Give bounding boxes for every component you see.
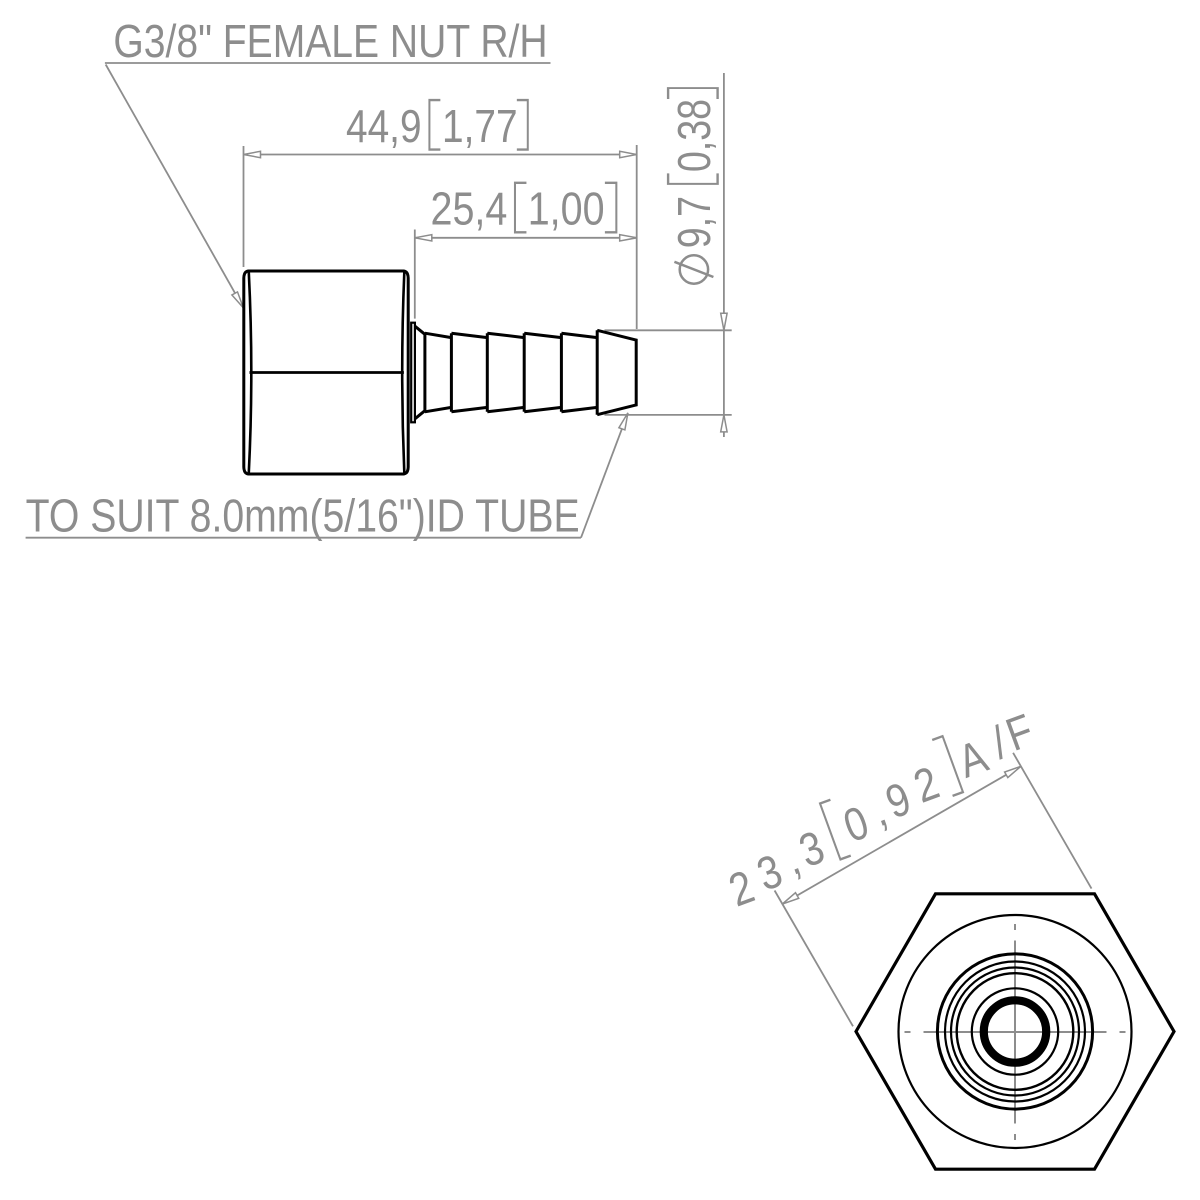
- svg-text:25,4: 25,4: [431, 184, 508, 236]
- svg-text:2: 2: [907, 757, 945, 813]
- svg-text:44,9: 44,9: [346, 101, 422, 153]
- svg-text:1,77: 1,77: [442, 101, 518, 153]
- svg-text:TO SUIT 8.0mm(5/16")ID TUBE: TO SUIT 8.0mm(5/16")ID TUBE: [26, 490, 580, 542]
- svg-text:2: 2: [722, 861, 760, 917]
- svg-text:0: 0: [837, 797, 875, 853]
- svg-text:9,7: 9,7: [668, 196, 720, 248]
- svg-text:0,38: 0,38: [668, 99, 720, 172]
- svg-text:1,00: 1,00: [528, 184, 605, 236]
- svg-text:G3/8" FEMALE NUT R/H: G3/8" FEMALE NUT R/H: [113, 16, 547, 68]
- svg-text:3: 3: [751, 845, 789, 901]
